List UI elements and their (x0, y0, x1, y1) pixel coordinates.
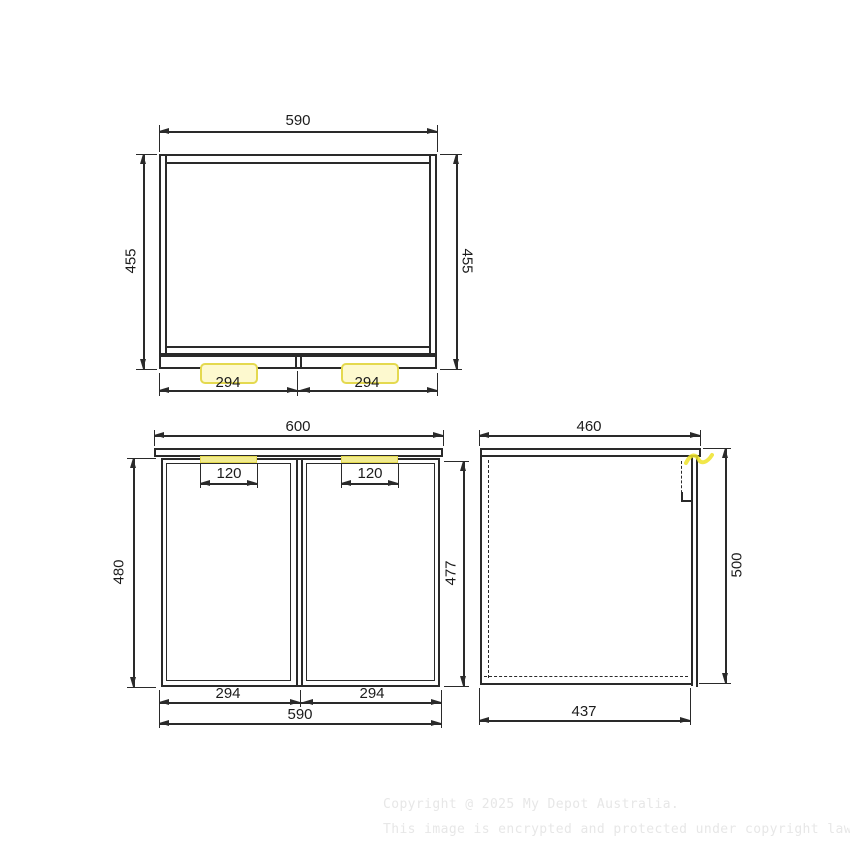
arrow-icon (460, 461, 466, 471)
arrow-icon (431, 720, 441, 726)
plan-width-ext-left (159, 125, 160, 152)
plan-depth-left-dim-line (143, 154, 145, 369)
arrow-icon (433, 432, 443, 438)
side-internal-depth-dim-label: 437 (571, 704, 596, 719)
front-body-width-dim-label: 590 (287, 707, 312, 722)
arrow-icon (287, 387, 297, 393)
arrow-icon (690, 432, 700, 438)
plan-depth-right-ext-bottom (440, 369, 462, 370)
front-handle-highlight-right (341, 456, 398, 463)
front-height-ext-bottom (127, 687, 156, 688)
plan-width-dim-label: 590 (285, 113, 310, 128)
front-body-width-ext-right (441, 690, 442, 728)
plan-door-left-dim-label: 294 (215, 375, 240, 390)
front-door-height-ext-top (444, 461, 469, 462)
side-depth-dim-label: 460 (576, 419, 601, 434)
front-handle-left-ext-b (257, 463, 258, 488)
arrow-icon (460, 676, 466, 686)
arrow-icon (290, 699, 300, 705)
front-door-gap-left-line (296, 459, 298, 686)
front-right-door-panel (306, 463, 435, 681)
arrow-icon (431, 699, 441, 705)
arrow-icon (479, 717, 489, 723)
arrow-icon (140, 154, 146, 164)
front-countertop-dim-label: 600 (285, 419, 310, 434)
side-door-outer-line (696, 457, 698, 687)
side-bottom-edge-line (480, 683, 691, 685)
arrow-icon (453, 154, 459, 164)
plan-front-rail-line (167, 346, 429, 348)
plan-depth-left-ext-bottom (136, 369, 157, 370)
plan-door-ext-right (437, 373, 438, 396)
side-hidden-back-line (488, 460, 489, 678)
arrow-icon (341, 480, 351, 486)
plan-depth-left-dim-label: 455 (124, 248, 139, 273)
front-countertop-dim-line (154, 435, 443, 437)
front-height-dim-line (133, 458, 135, 687)
technical-drawing-canvas: 590 455 455 294 294 (0, 0, 850, 850)
arrow-icon (159, 699, 169, 705)
plan-left-panel-line (165, 156, 167, 353)
front-body-width-ext-left (159, 690, 160, 728)
plan-cabinet-outline (159, 154, 437, 355)
side-door-inner-line (691, 457, 693, 686)
front-countertop-ext-right (443, 430, 444, 446)
arrow-icon (722, 448, 728, 458)
front-door-height-dim-line (463, 461, 465, 686)
plan-door-gap-left-line (295, 357, 297, 367)
plan-right-panel-line (429, 156, 431, 353)
arrow-icon (427, 387, 437, 393)
arrow-icon (479, 432, 489, 438)
plan-door-ext-center (297, 371, 298, 396)
watermark-line-1: Copyright @ 2025 My Depot Australia. (383, 797, 679, 812)
arrow-icon (303, 699, 313, 705)
side-height-dim-label: 500 (730, 552, 745, 577)
front-handle-left-dim-label: 120 (216, 466, 241, 481)
side-height-ext-bottom (699, 683, 731, 684)
arrow-icon (388, 480, 398, 486)
arrow-icon (159, 128, 169, 134)
plan-back-panel-line (167, 162, 429, 164)
arrow-icon (159, 387, 169, 393)
front-door-right-dim-label: 294 (359, 686, 384, 701)
plan-depth-right-dim-label: 455 (460, 248, 475, 273)
side-internal-depth-ext-right (690, 688, 691, 725)
front-handle-right-ext-a (341, 463, 342, 488)
side-depth-dim-line (479, 435, 700, 437)
front-height-dim-label: 480 (112, 559, 127, 584)
plan-depth-right-ext-top (440, 154, 462, 155)
side-depth-ext-right (700, 430, 701, 446)
front-handle-highlight-left (200, 456, 257, 463)
arrow-icon (200, 480, 210, 486)
front-door-gap-right-line (301, 459, 303, 686)
front-door-height-ext-bottom (444, 686, 469, 687)
arrow-icon (130, 677, 136, 687)
front-body-width-dim-line (159, 723, 441, 725)
front-handle-left-ext-a (200, 463, 201, 488)
arrow-icon (130, 458, 136, 468)
side-back-edge-line (480, 457, 482, 685)
side-height-ext-top (703, 448, 731, 449)
front-height-ext-top (127, 458, 156, 459)
side-height-dim-line (725, 448, 727, 683)
plan-door-ext-left (159, 373, 160, 396)
arrow-icon (154, 432, 164, 438)
front-countertop-ext-left (154, 430, 155, 446)
arrow-icon (427, 128, 437, 134)
plan-door-gap-right-line (300, 357, 302, 367)
arrow-icon (453, 359, 459, 369)
side-countertop (480, 448, 701, 457)
plan-width-ext-right (437, 125, 438, 152)
watermark-line-2: This image is encrypted and protected un… (383, 822, 850, 837)
plan-width-dim-line (159, 131, 437, 133)
plan-door-right-dim-label: 294 (354, 375, 379, 390)
arrow-icon (300, 387, 310, 393)
front-left-door-panel (166, 463, 291, 681)
front-countertop (154, 448, 443, 457)
arrow-icon (159, 720, 169, 726)
front-door-left-dim-label: 294 (215, 686, 240, 701)
arrow-icon (722, 673, 728, 683)
side-depth-ext-left (479, 430, 480, 446)
plan-depth-right-dim-line (456, 154, 458, 369)
side-internal-depth-dim-line (479, 720, 690, 722)
side-handle-bracket-h (681, 500, 691, 502)
front-handle-right-dim-label: 120 (357, 466, 382, 481)
front-handle-right-ext-b (398, 463, 399, 488)
arrow-icon (140, 359, 146, 369)
side-handle-highlight-mark (684, 451, 714, 467)
front-door-ext-center (300, 690, 301, 707)
front-door-height-dim-label: 477 (444, 560, 459, 585)
plan-door-dims-line (159, 390, 437, 392)
side-internal-depth-ext-left (479, 688, 480, 725)
side-hidden-bottom-line (484, 676, 688, 677)
arrow-icon (247, 480, 257, 486)
plan-depth-left-ext-top (136, 154, 157, 155)
arrow-icon (680, 717, 690, 723)
